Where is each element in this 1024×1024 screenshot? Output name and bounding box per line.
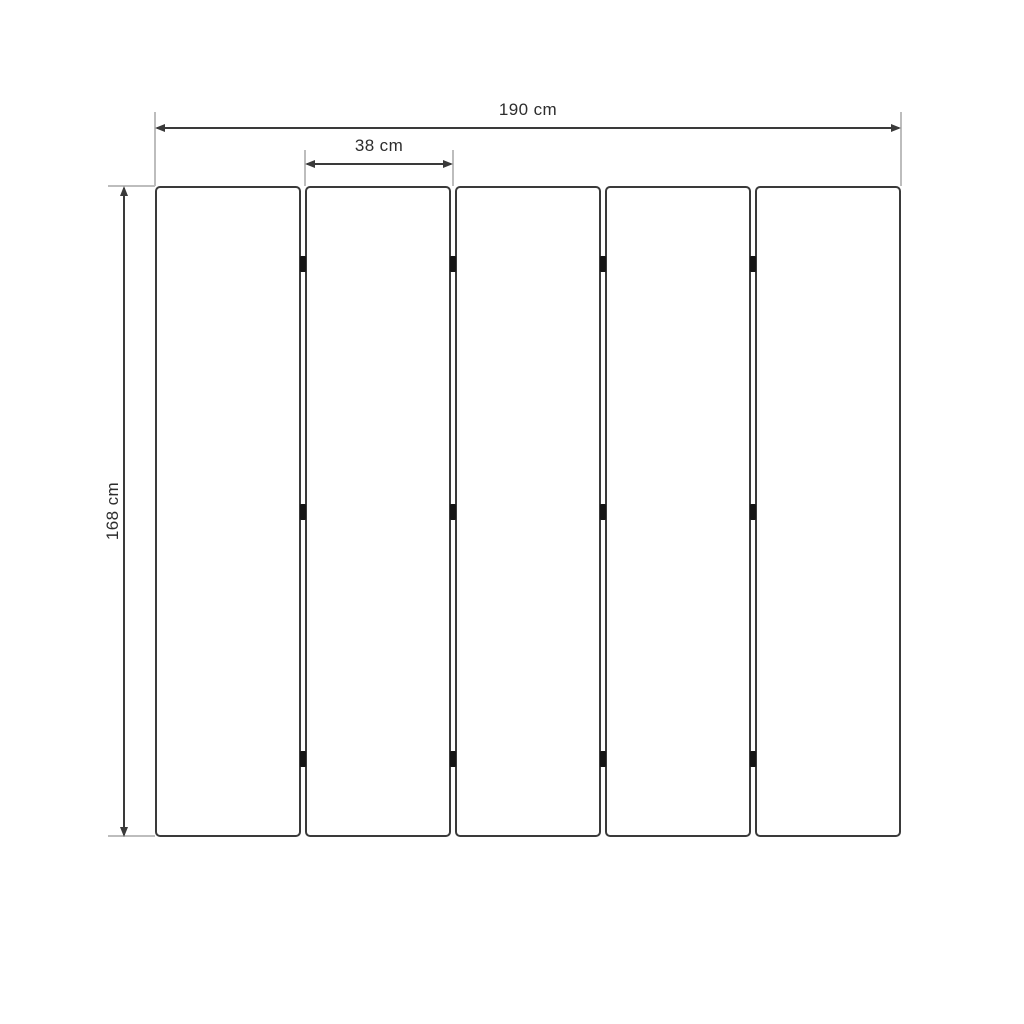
panel-5 xyxy=(755,186,901,837)
extension-line-height-top xyxy=(108,185,155,187)
arrowhead-left-icon xyxy=(305,160,315,168)
panels-row xyxy=(155,186,901,837)
arrowhead-down-icon xyxy=(120,827,128,837)
dimension-line xyxy=(307,163,451,165)
arrowhead-left-icon xyxy=(155,124,165,132)
hinge-gap2-3 xyxy=(450,751,456,767)
hinge-gap4-1 xyxy=(750,256,756,272)
hinge-gap3-2 xyxy=(600,504,606,520)
dimension-panel-width-label: 38 cm xyxy=(355,136,403,156)
panel-4 xyxy=(605,186,751,837)
hinge-gap3-1 xyxy=(600,256,606,272)
hinge-gap1-2 xyxy=(300,504,306,520)
hinge-gap1-3 xyxy=(300,751,306,767)
hinge-gap2-1 xyxy=(450,256,456,272)
hinge-gap4-2 xyxy=(750,504,756,520)
extension-line-height-bottom xyxy=(108,835,155,837)
dimension-total-width-label: 190 cm xyxy=(499,100,557,120)
arrowhead-right-icon xyxy=(443,160,453,168)
arrowhead-right-icon xyxy=(891,124,901,132)
dimension-height-label: 168 cm xyxy=(103,466,123,556)
hinge-gap3-3 xyxy=(600,751,606,767)
hinge-gap4-3 xyxy=(750,751,756,767)
hinge-gap1-1 xyxy=(300,256,306,272)
dimension-panel-width: 38 cm xyxy=(305,159,453,169)
diagram-canvas: 190 cm 38 cm 168 cm xyxy=(0,0,1024,1024)
dimension-line xyxy=(123,188,125,835)
panel-3 xyxy=(455,186,601,837)
dimension-line xyxy=(157,127,899,129)
dimension-total-width: 190 cm xyxy=(155,123,901,133)
panel-2 xyxy=(305,186,451,837)
arrowhead-up-icon xyxy=(120,186,128,196)
panel-1 xyxy=(155,186,301,837)
hinge-gap2-2 xyxy=(450,504,456,520)
